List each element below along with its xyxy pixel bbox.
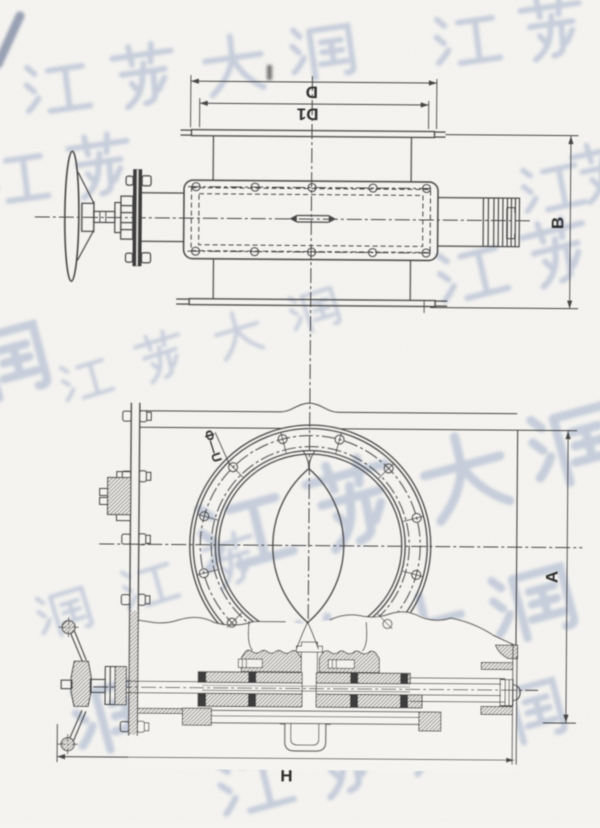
svg-text:D1: D1 [297,104,319,123]
svg-text:B: B [548,217,567,229]
svg-text:H: H [280,766,292,785]
svg-text:D: D [306,83,318,102]
svg-text:A: A [542,571,561,583]
